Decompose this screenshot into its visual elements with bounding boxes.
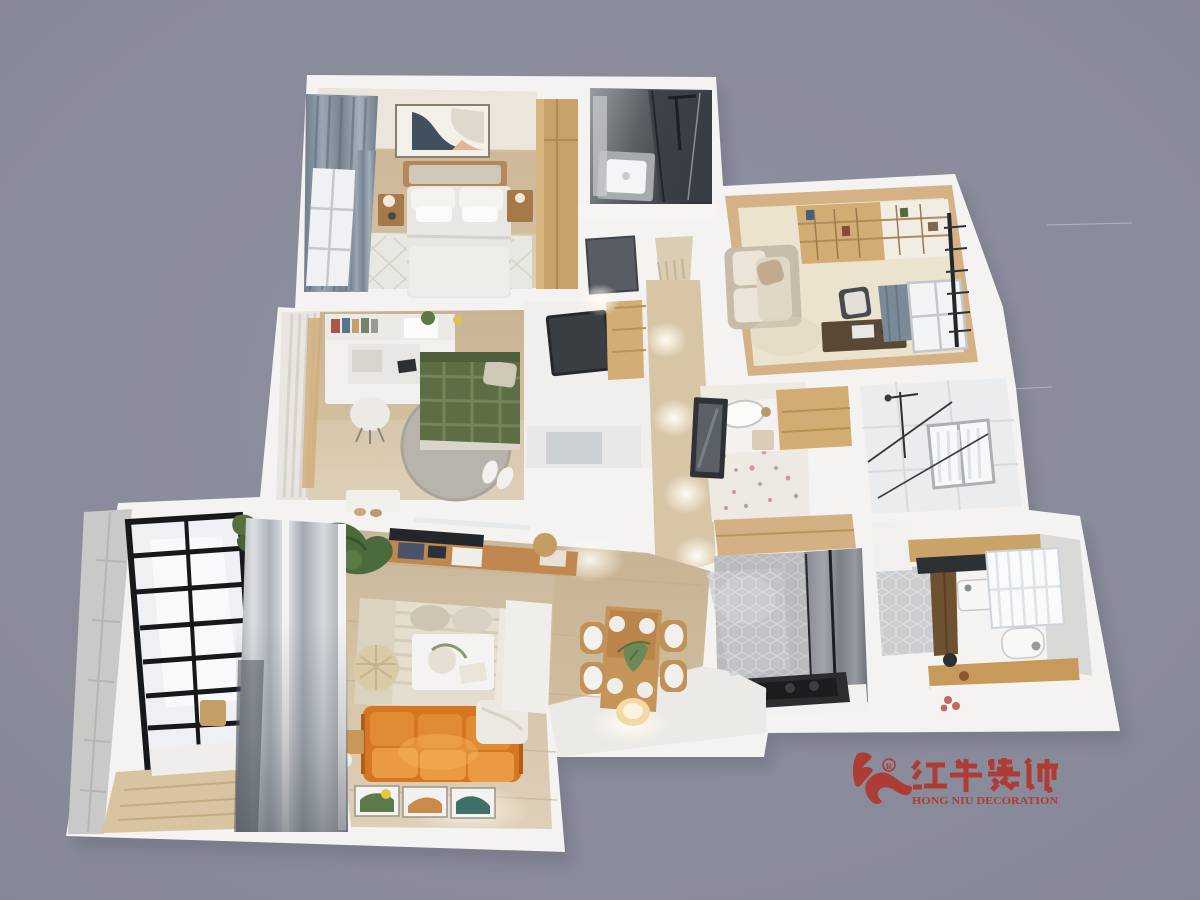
svg-text:HONG NIU DECORATION: HONG NIU DECORATION — [912, 796, 1058, 807]
svg-text:R: R — [886, 761, 893, 771]
